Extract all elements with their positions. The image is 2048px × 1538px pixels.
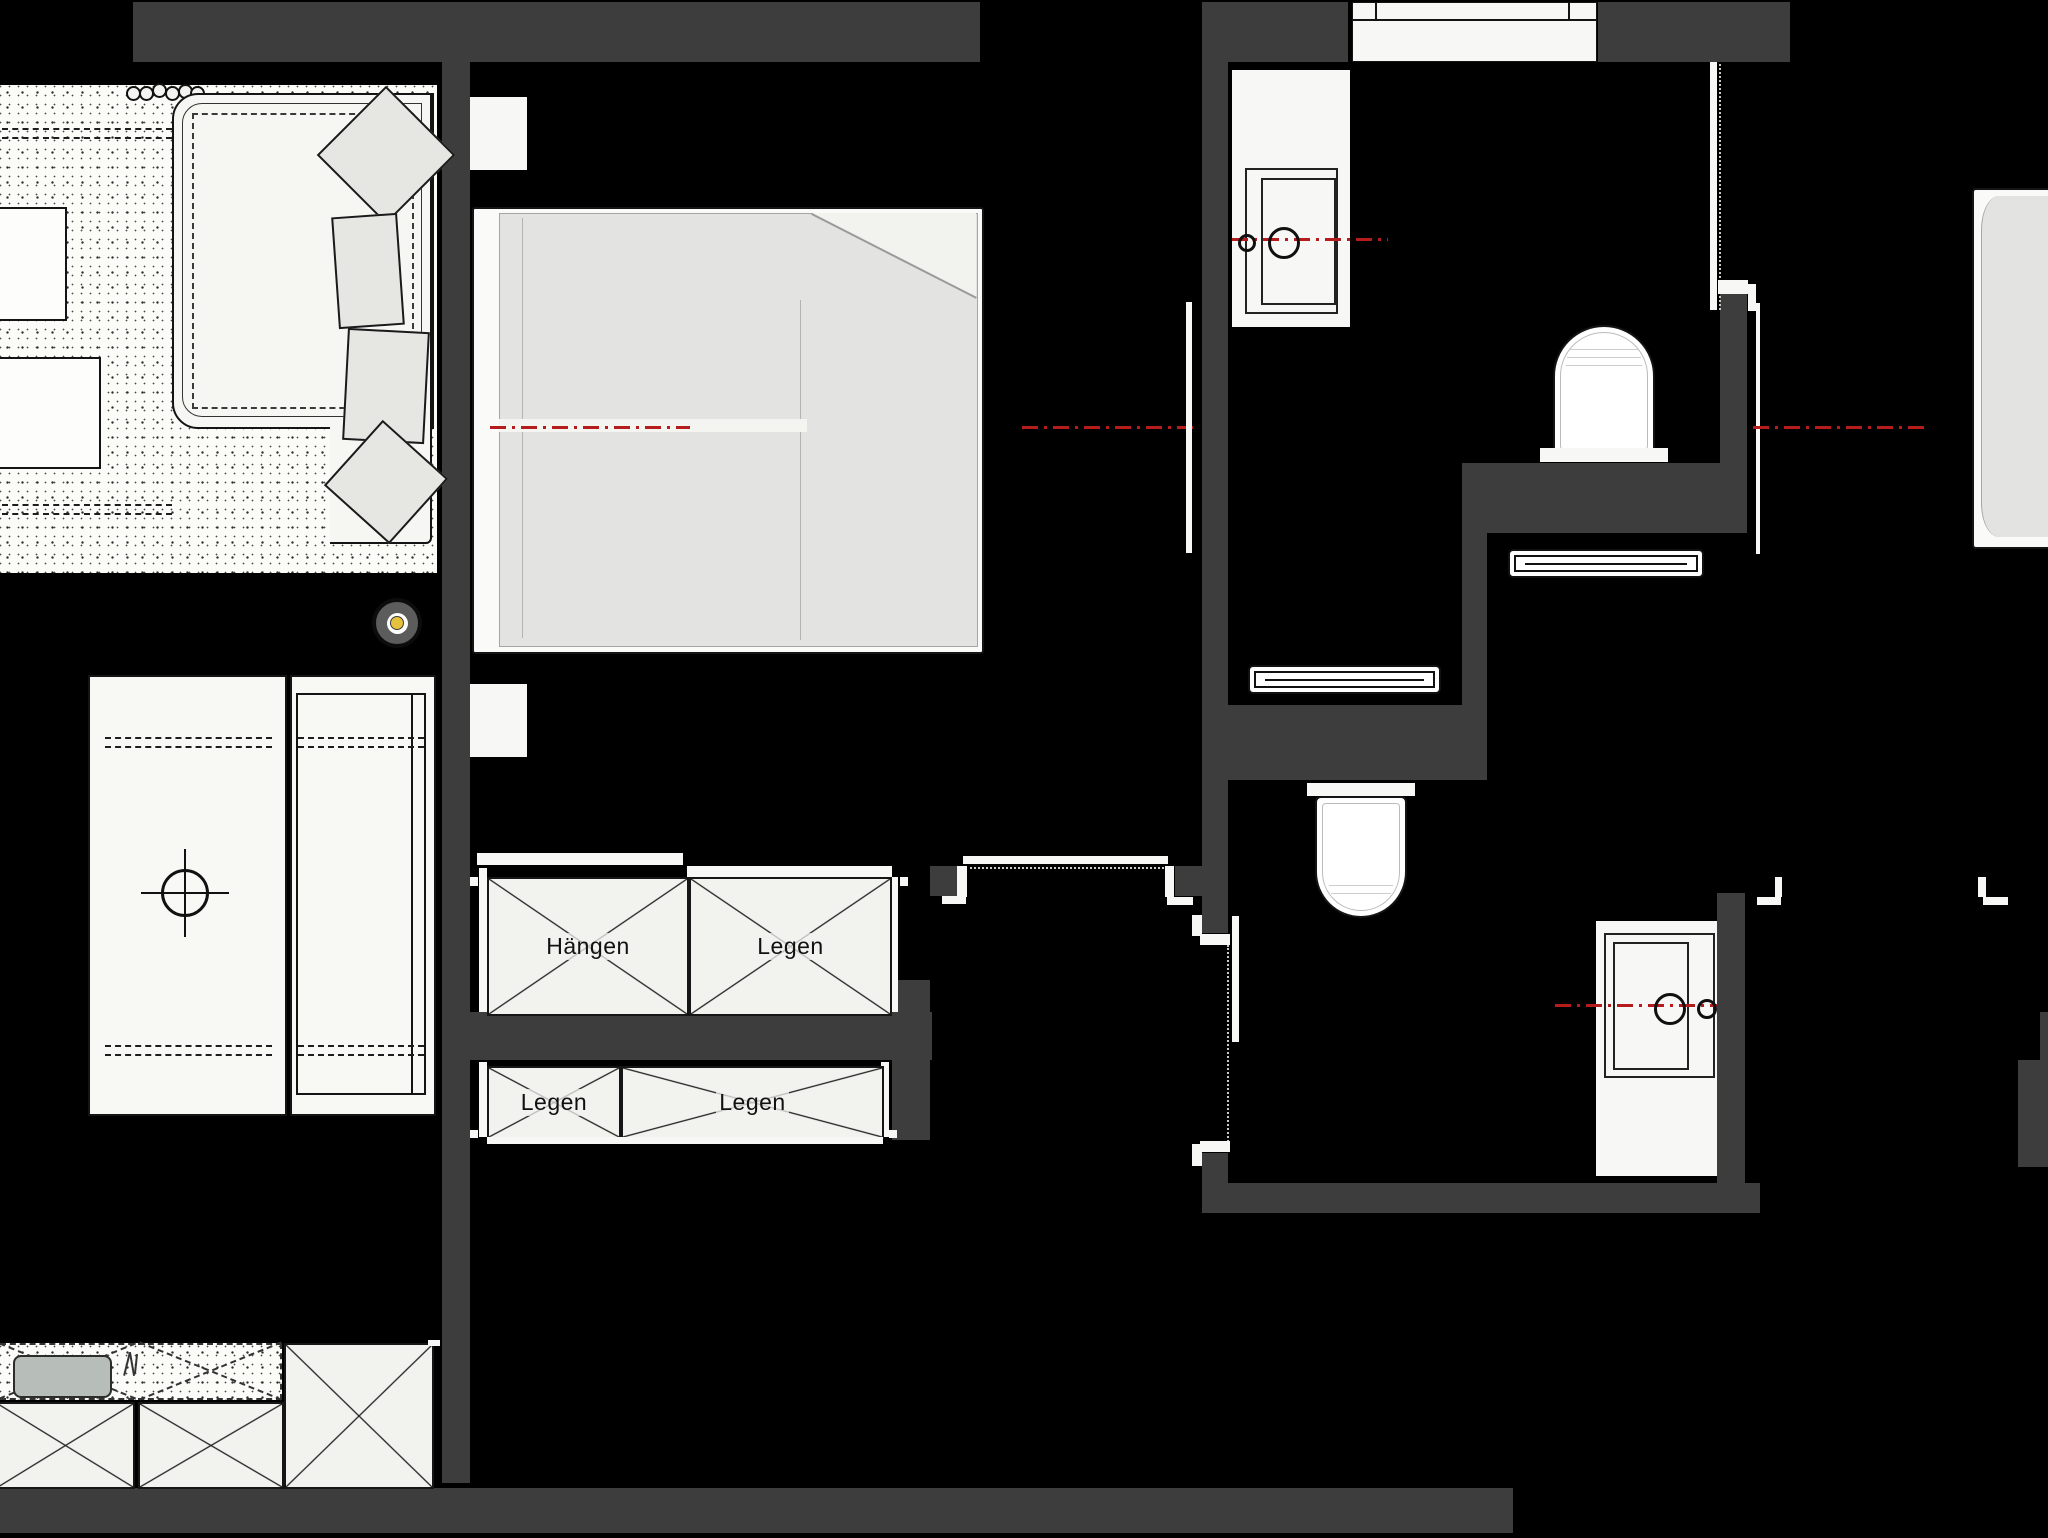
door-jamb <box>957 866 967 897</box>
wall-niche <box>470 684 527 757</box>
wall-shower-right <box>1462 533 1487 707</box>
wall-top-living <box>133 2 980 62</box>
door-track-dotted <box>965 867 1168 869</box>
door-leaf-open <box>1186 302 1192 553</box>
centerline-circle <box>1697 999 1717 1019</box>
wall-shower-bottom <box>1203 705 1487 780</box>
wall-bath-mid-band <box>1462 463 1747 533</box>
wall-spine <box>442 62 470 1483</box>
desk-dashed-line <box>105 1045 272 1056</box>
toilet-base <box>1540 448 1668 462</box>
wall-tick <box>889 1130 897 1138</box>
door-sill <box>1757 897 1781 905</box>
bed-crease <box>800 300 801 640</box>
sliding-door-leaf <box>1232 916 1239 1042</box>
floor-plan: Hängen Legen Legen Legen <box>0 0 2048 1538</box>
wall-bottom-strip <box>0 1488 1513 1533</box>
side-table <box>0 357 101 469</box>
centerline-circle <box>1654 993 1686 1025</box>
wall-door-stub-left <box>930 866 957 896</box>
kitchen-cabinet <box>138 1402 284 1489</box>
wall-top-bath-left <box>1202 2 1348 62</box>
centerline-right-room <box>1753 426 1928 429</box>
door-jamb <box>1165 866 1174 897</box>
wall-bath-bottom-band <box>1202 1183 1760 1213</box>
wall-bath-right-bottom <box>1717 893 1745 1210</box>
side-table <box>0 207 67 321</box>
door-header <box>1200 1141 1230 1152</box>
shower-drain <box>1508 549 1704 578</box>
centerline-corridor <box>1022 426 1198 429</box>
wardrobe-cell-hang: Hängen <box>487 877 689 1016</box>
door-header <box>1200 934 1230 945</box>
sliding-door-leaf <box>963 856 1168 864</box>
sideboard-inner <box>296 693 426 1095</box>
door-jamb <box>1978 877 1986 897</box>
wall-wardrobe-band <box>442 1012 932 1060</box>
door-swing-dotted <box>1719 64 1721 310</box>
bed-right-duvet <box>1981 196 2048 537</box>
toilet-base <box>1307 783 1415 796</box>
wall-hall-right-1 <box>2018 1060 2048 1167</box>
centerline-circle <box>1238 234 1256 252</box>
wardrobe-top-rail <box>477 853 683 865</box>
sideboard-dashed-line <box>298 1045 424 1056</box>
kitchen-tall-unit <box>284 1343 434 1489</box>
door-leaf-open <box>1710 62 1717 310</box>
wardrobe-label: Hängen <box>543 933 633 960</box>
toilet <box>1315 796 1407 918</box>
wall-tick <box>470 1130 478 1138</box>
wall-top-bath-right <box>1598 2 1790 62</box>
wall-niche <box>470 97 527 170</box>
centerline-circle <box>1268 227 1300 259</box>
living-dashed-line <box>2 128 172 139</box>
door-sill <box>1983 897 2008 905</box>
window <box>1352 2 1597 62</box>
wall-tick <box>470 877 478 886</box>
wardrobe-endcap <box>479 868 487 1012</box>
toilet <box>1553 325 1655 457</box>
door-stop <box>1718 280 1748 294</box>
wardrobe-label: Legen <box>716 1089 788 1116</box>
wardrobe-cell-lay: Legen <box>689 877 892 1016</box>
wardrobe-top-rail <box>687 866 892 877</box>
wall-bath-left-top <box>1202 62 1228 933</box>
wall-tick <box>900 877 908 886</box>
faucet-icon <box>124 1352 138 1378</box>
wall-bath-right-top <box>1720 283 1747 463</box>
door-jamb <box>1192 915 1202 936</box>
desk-dashed-line <box>105 737 272 748</box>
door-track-dotted <box>1227 945 1229 1142</box>
sideboard-divider <box>411 693 413 1095</box>
sideboard-dashed-line <box>298 737 424 748</box>
wardrobe-label: Legen <box>754 933 826 960</box>
kitchen-sink <box>13 1355 112 1398</box>
door-stop <box>1748 284 1756 311</box>
ceiling-lamp-icon <box>372 598 422 648</box>
wall-tick <box>428 1340 440 1346</box>
kitchen-cabinet <box>0 1402 135 1489</box>
door-sill <box>1167 897 1193 905</box>
wall-hall-right-2 <box>2040 1012 2048 1062</box>
wardrobe-base-strip <box>487 1137 883 1144</box>
wardrobe-label: Legen <box>518 1089 590 1116</box>
centerline-washbasin <box>1555 1004 1717 1007</box>
centerline-bedroom <box>490 426 690 429</box>
wardrobe-endcap <box>479 1062 487 1137</box>
door-jamb <box>1775 877 1782 897</box>
crosshair-icon <box>141 892 229 894</box>
door-sill <box>942 896 966 904</box>
door-jamb <box>1192 1144 1202 1166</box>
pillow <box>331 213 405 329</box>
living-dashed-line <box>2 504 172 515</box>
shower-drain <box>1248 665 1441 694</box>
wardrobe-cell-lay: Legen <box>487 1066 621 1139</box>
wardrobe-cell-lay: Legen <box>621 1066 884 1139</box>
